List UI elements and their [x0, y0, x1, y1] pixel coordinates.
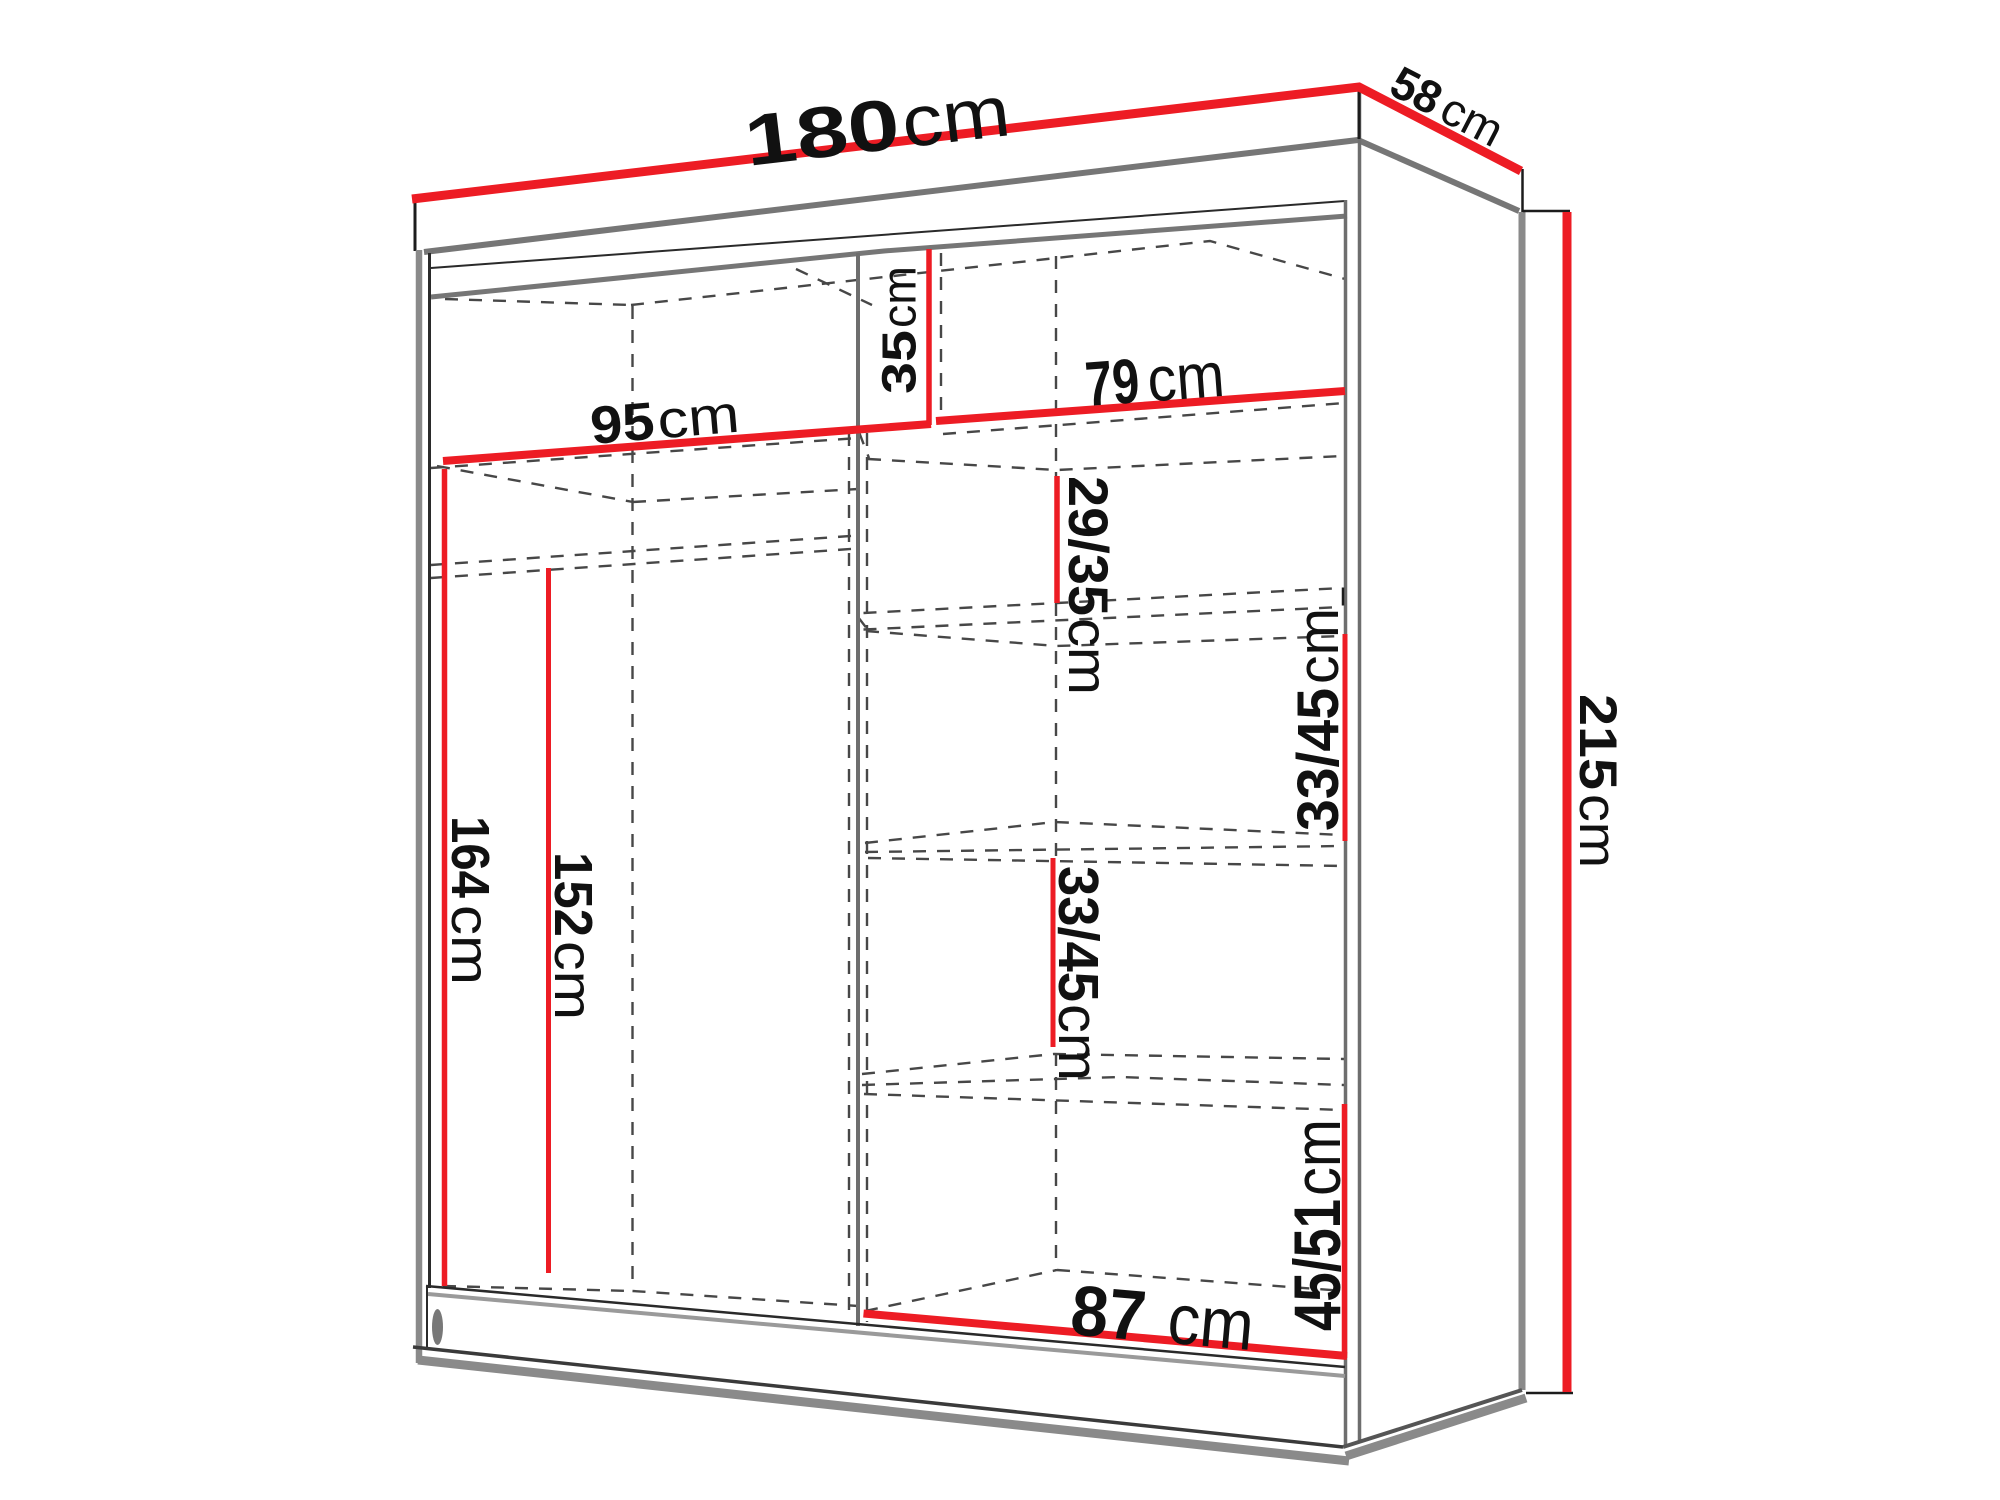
svg-text:cm: cm [874, 266, 927, 328]
svg-text:79: 79 [1083, 346, 1142, 420]
svg-text:45/51: 45/51 [1280, 1199, 1354, 1331]
svg-text:164: 164 [440, 816, 500, 898]
svg-text:cm: cm [543, 941, 603, 1020]
svg-text:29/35: 29/35 [1057, 476, 1120, 616]
svg-text:95: 95 [588, 392, 657, 456]
svg-text:33/45: 33/45 [1046, 866, 1110, 1002]
svg-text:cm: cm [1286, 608, 1351, 684]
svg-text:33/45: 33/45 [1286, 688, 1351, 831]
svg-text:cm: cm [1145, 340, 1227, 416]
svg-text:cm: cm [1280, 1119, 1354, 1196]
svg-text:35: 35 [874, 330, 927, 394]
svg-text:87: 87 [1068, 1271, 1150, 1356]
svg-text:215: 215 [1568, 694, 1627, 790]
svg-text:cm: cm [1568, 794, 1627, 868]
svg-text:152: 152 [543, 852, 603, 937]
svg-text:cm: cm [440, 905, 500, 985]
svg-text:cm: cm [1057, 618, 1120, 695]
svg-text:cm: cm [897, 71, 1014, 163]
svg-text:cm: cm [1165, 1280, 1258, 1366]
svg-text:cm: cm [1046, 1004, 1110, 1081]
svg-text:cm: cm [655, 385, 742, 451]
